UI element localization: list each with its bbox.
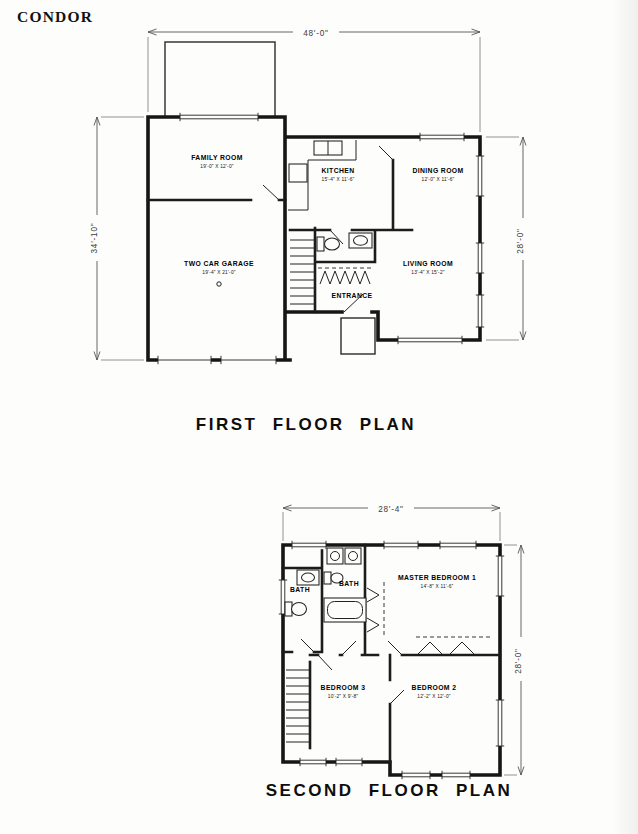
dim-right2-label: 28'-0" (514, 648, 523, 674)
vanity-sink (302, 573, 315, 582)
plan-title: CONDOR (17, 8, 93, 25)
room-label-entrance: ENTRANCE (332, 292, 373, 299)
room-size-dining: 12'-0" X 11'-6" (422, 177, 455, 182)
room-label-dining: DINING ROOM (412, 167, 463, 174)
vanity-sink (354, 236, 368, 245)
toilet-tank (317, 237, 324, 251)
dim-width-label: 48'-0" (303, 29, 329, 38)
laundry-unit (345, 548, 361, 564)
dimension-left: 34'-10" (90, 117, 144, 360)
kitchen-range (289, 164, 307, 182)
second-floor-caption: SECOND FLOOR PLAN (266, 781, 512, 800)
room-label-bath-hall: BATH (290, 586, 310, 593)
dim-right-label: 28'-0" (516, 228, 525, 254)
room-label-master: MASTER BEDROOM 1 (398, 574, 476, 581)
dimension-right-first: 28'-0" (486, 137, 529, 340)
first-floor-plan: 48'-0" 34'-10" 28'-0" (90, 26, 529, 434)
stairs-first-floor (290, 240, 315, 304)
room-label-garage: TWO CAR GARAGE (184, 260, 254, 267)
room-label-bedroom3: BEDROOM 3 (321, 684, 366, 691)
room-size-living: 13'-4" X 15'-2" (411, 270, 444, 275)
room-label-family: FAMILY ROOM (191, 154, 243, 161)
stairs-second-floor (286, 662, 310, 748)
room-label-bedroom2: BEDROOM 2 (412, 684, 457, 691)
entry-closet (318, 268, 372, 284)
laundry-unit (327, 548, 343, 564)
toilet-tank (285, 602, 292, 616)
master-closets (367, 582, 490, 654)
room-size-bedroom2: 12'-2" X 12'-0" (417, 694, 450, 699)
room-label-bath-master: BATH (339, 580, 359, 587)
kitchen-counter (288, 140, 356, 210)
dim-left-label: 34'-10" (90, 222, 99, 253)
second-floor-plan: 28'-4" 28'-0" (266, 502, 527, 800)
toilet-bowl (292, 603, 307, 616)
first-floor-caption: FIRST FLOOR PLAN (196, 415, 416, 434)
toilet-tank (324, 572, 331, 584)
room-size-family: 19'-0" X 12'-0" (200, 164, 233, 169)
floor-plan-canvas: CONDOR 48'-0" 34'-10" 28'-0" (0, 0, 638, 834)
dimension-width-second: 28'-4" (283, 502, 500, 541)
bath-fixtures-first-floor (317, 233, 372, 251)
toilet-bowl (325, 238, 340, 250)
garage-floor-drain (217, 282, 221, 286)
entry-stoop (341, 318, 375, 354)
room-size-kitchen: 15'-4" X 11'-6" (322, 177, 355, 182)
patio-outline (165, 42, 275, 117)
dimension-right-second: 28'-0" (504, 545, 527, 775)
room-size-bedroom3: 10'-2" X 9'-8" (328, 694, 359, 699)
hall-bath-fixtures (285, 570, 319, 616)
room-size-garage: 19'-4" X 21'-0" (202, 270, 235, 275)
dim-width2-label: 28'-4" (378, 505, 404, 514)
room-label-kitchen: KITCHEN (321, 167, 354, 174)
room-size-master: 14'-8" X 11'-6" (421, 584, 454, 589)
room-label-living: LIVING ROOM (403, 260, 453, 267)
